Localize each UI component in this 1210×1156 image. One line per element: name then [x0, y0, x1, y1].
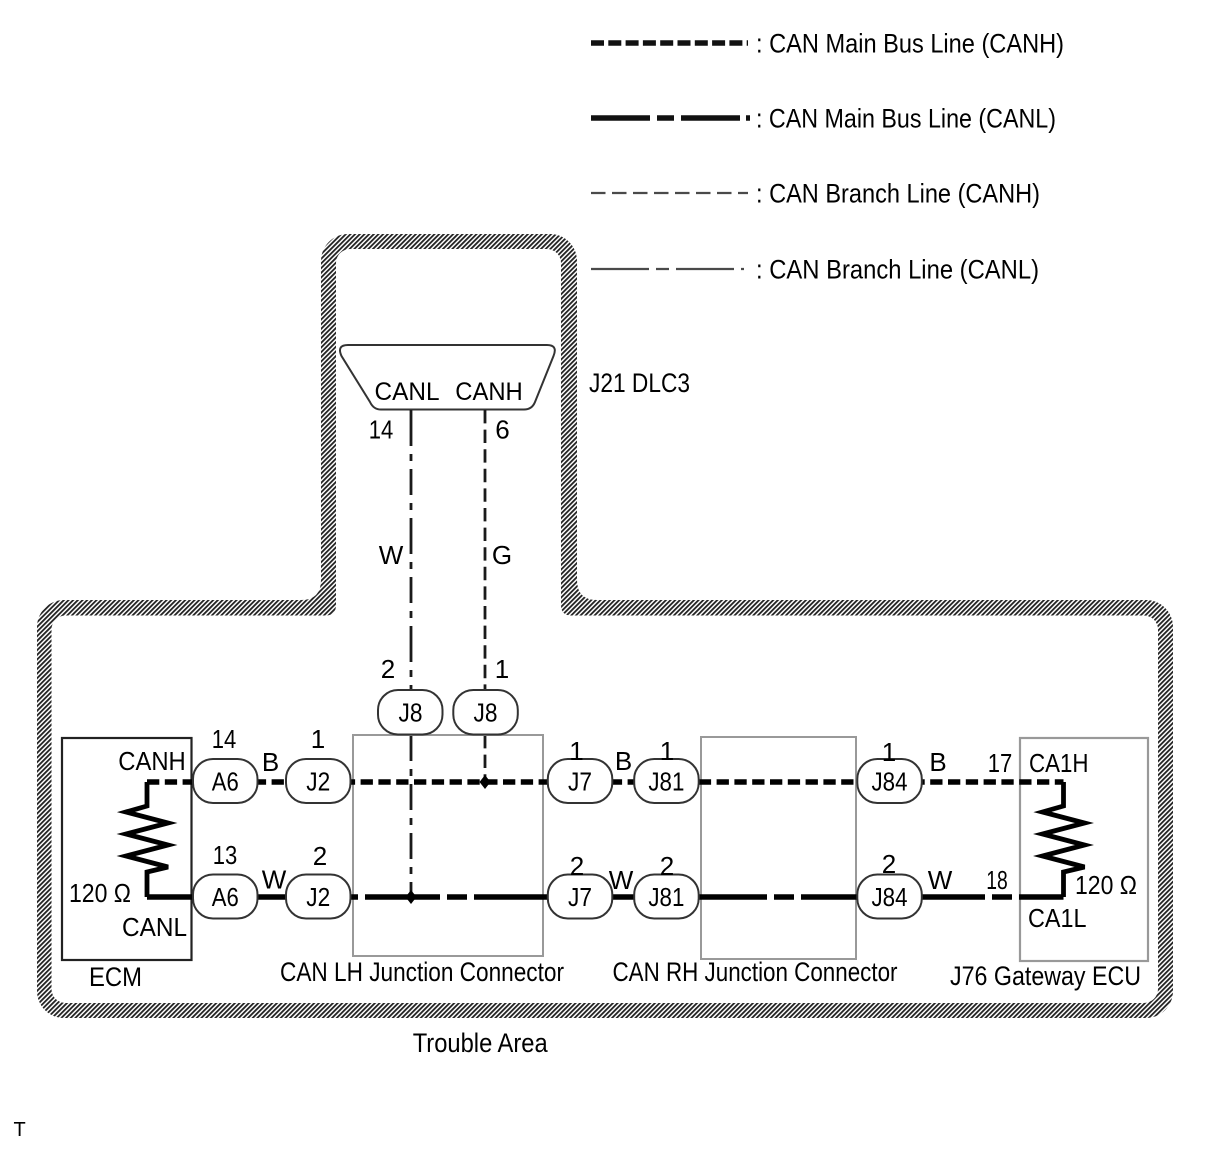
svg-text:CAN LH Junction Connector: CAN LH Junction Connector — [280, 957, 564, 987]
svg-text:J7: J7 — [568, 767, 592, 797]
svg-text:14: 14 — [369, 415, 394, 445]
svg-text:CANH: CANH — [118, 746, 186, 776]
svg-text:120 Ω: 120 Ω — [1075, 870, 1137, 900]
svg-text:: CAN Branch Line (CANL): : CAN Branch Line (CANL) — [756, 255, 1039, 285]
svg-text:B: B — [615, 746, 632, 776]
svg-text:CANH: CANH — [455, 378, 523, 406]
svg-text:6: 6 — [495, 415, 509, 445]
svg-text:J7: J7 — [568, 882, 592, 912]
svg-text:J81: J81 — [648, 767, 684, 797]
svg-text:J81: J81 — [648, 882, 684, 912]
svg-text:ECM: ECM — [89, 962, 142, 992]
svg-text:120 Ω: 120 Ω — [69, 878, 131, 908]
svg-text:1: 1 — [311, 724, 325, 754]
svg-text:W: W — [262, 865, 287, 895]
svg-text:J2: J2 — [306, 882, 330, 912]
svg-text:B: B — [262, 747, 279, 777]
svg-text:J84: J84 — [872, 882, 908, 912]
svg-text:B: B — [929, 747, 946, 777]
svg-text:CAN RH Junction Connector: CAN RH Junction Connector — [613, 957, 898, 987]
svg-text:: CAN Main Bus Line (CANL): : CAN Main Bus Line (CANL) — [756, 104, 1056, 134]
svg-text:1: 1 — [882, 737, 896, 767]
svg-text:J8: J8 — [399, 698, 423, 728]
svg-text:2: 2 — [660, 851, 674, 881]
svg-text:G: G — [492, 540, 512, 570]
svg-text:J21 DLC3: J21 DLC3 — [589, 368, 690, 398]
svg-text:1: 1 — [569, 736, 583, 766]
svg-text:J84: J84 — [872, 767, 908, 797]
svg-text:2: 2 — [882, 849, 896, 879]
svg-text:J76 Gateway ECU: J76 Gateway ECU — [950, 961, 1141, 991]
svg-text:A6: A6 — [212, 882, 239, 912]
svg-text:J8: J8 — [474, 698, 498, 728]
svg-text:CANL: CANL — [122, 912, 187, 942]
svg-text:2: 2 — [570, 851, 584, 881]
svg-text:14: 14 — [212, 724, 237, 754]
svg-text:CA1H: CA1H — [1029, 748, 1089, 778]
svg-text:CA1L: CA1L — [1028, 903, 1087, 933]
svg-text:A6: A6 — [212, 767, 239, 797]
svg-text:W: W — [609, 865, 634, 895]
svg-text:18: 18 — [986, 865, 1008, 895]
svg-text:Trouble Area: Trouble Area — [413, 1028, 549, 1058]
svg-text:W: W — [379, 540, 404, 570]
svg-text:2: 2 — [313, 841, 327, 871]
svg-text:1: 1 — [495, 654, 509, 684]
svg-text:: CAN Main Bus Line (CANH): : CAN Main Bus Line (CANH) — [756, 29, 1064, 59]
svg-text:T: T — [14, 1119, 26, 1141]
svg-text:1: 1 — [660, 736, 674, 766]
svg-text:CANL: CANL — [375, 378, 440, 406]
svg-text:J2: J2 — [306, 767, 330, 797]
svg-text:17: 17 — [988, 748, 1013, 778]
svg-text:W: W — [928, 865, 953, 895]
svg-text:2: 2 — [381, 654, 395, 684]
svg-text:: CAN Branch Line (CANH): : CAN Branch Line (CANH) — [756, 179, 1040, 209]
svg-text:13: 13 — [213, 840, 238, 870]
